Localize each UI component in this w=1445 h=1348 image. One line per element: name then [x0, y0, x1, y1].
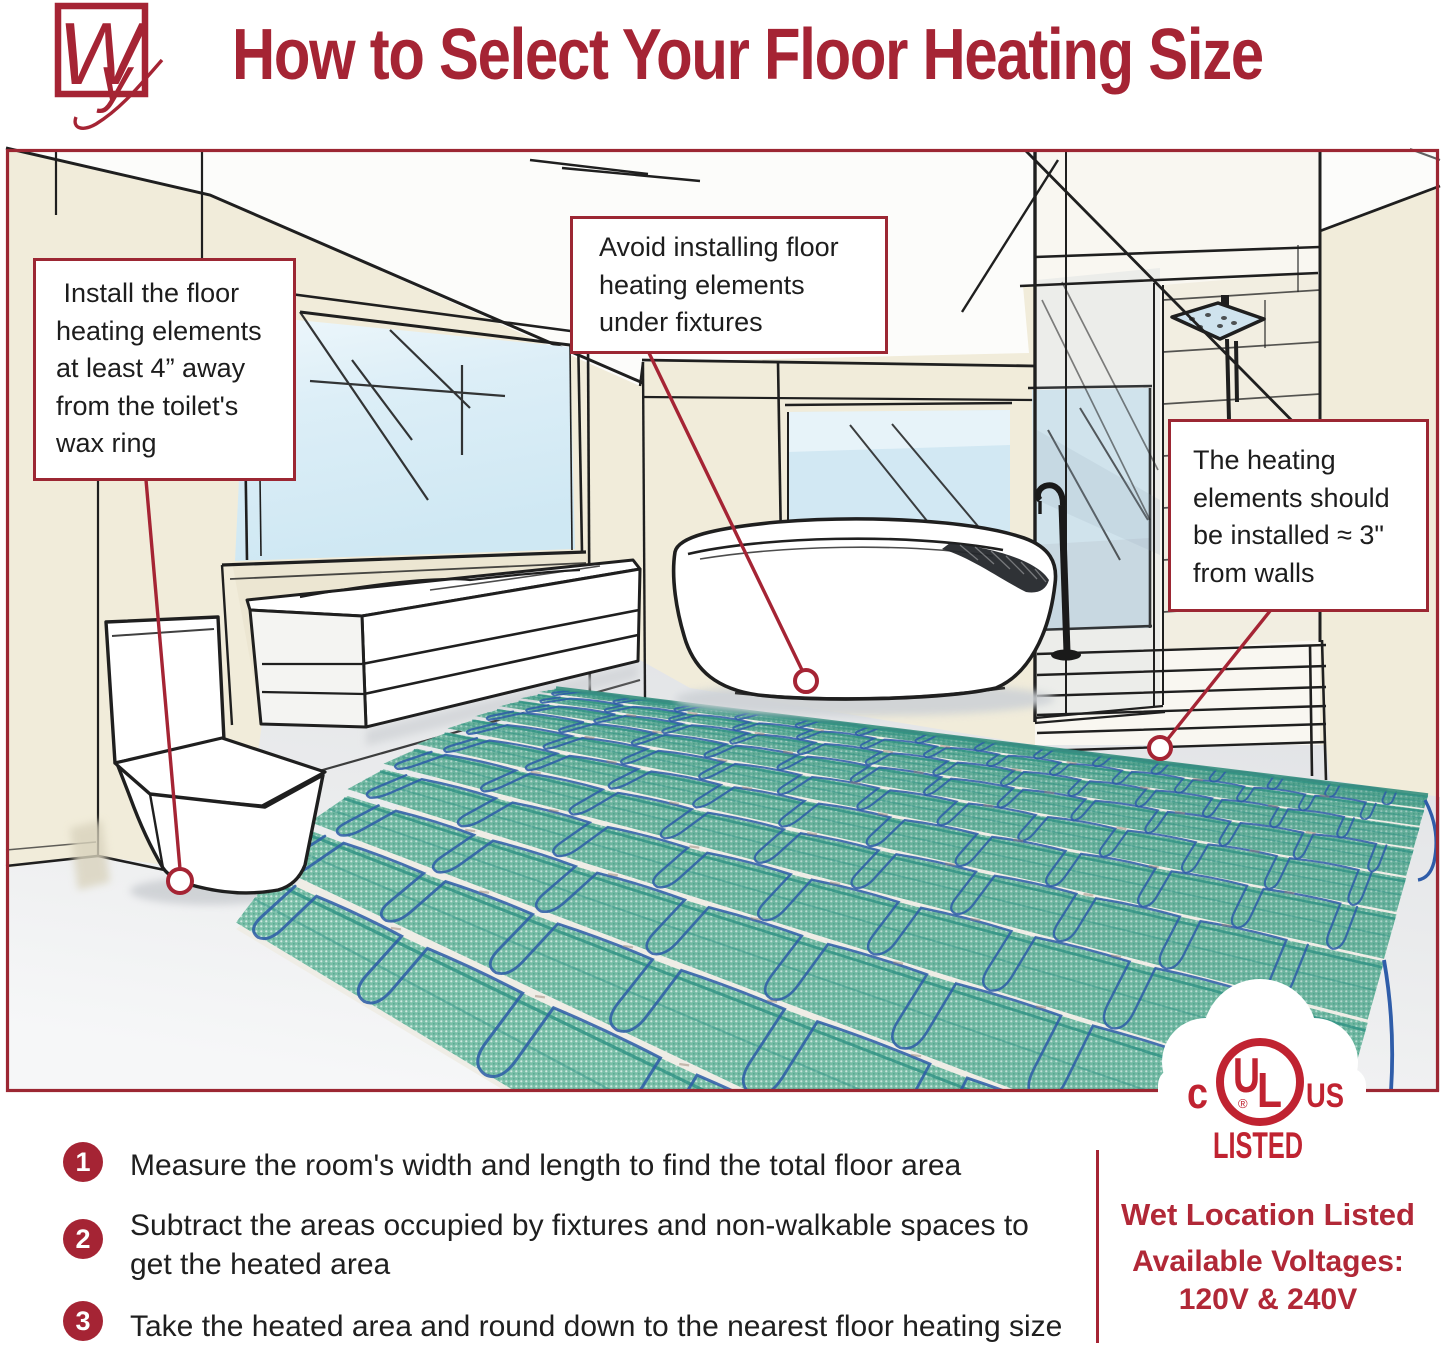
svg-text:L: L	[1257, 1064, 1282, 1118]
svg-text:US: US	[1306, 1077, 1344, 1115]
svg-text:c: c	[1187, 1069, 1208, 1118]
svg-text:®: ®	[1238, 1096, 1248, 1111]
svg-text:U: U	[1233, 1049, 1260, 1103]
svg-text:LISTED: LISTED	[1213, 1125, 1303, 1166]
svg-text:y: y	[96, 45, 135, 114]
